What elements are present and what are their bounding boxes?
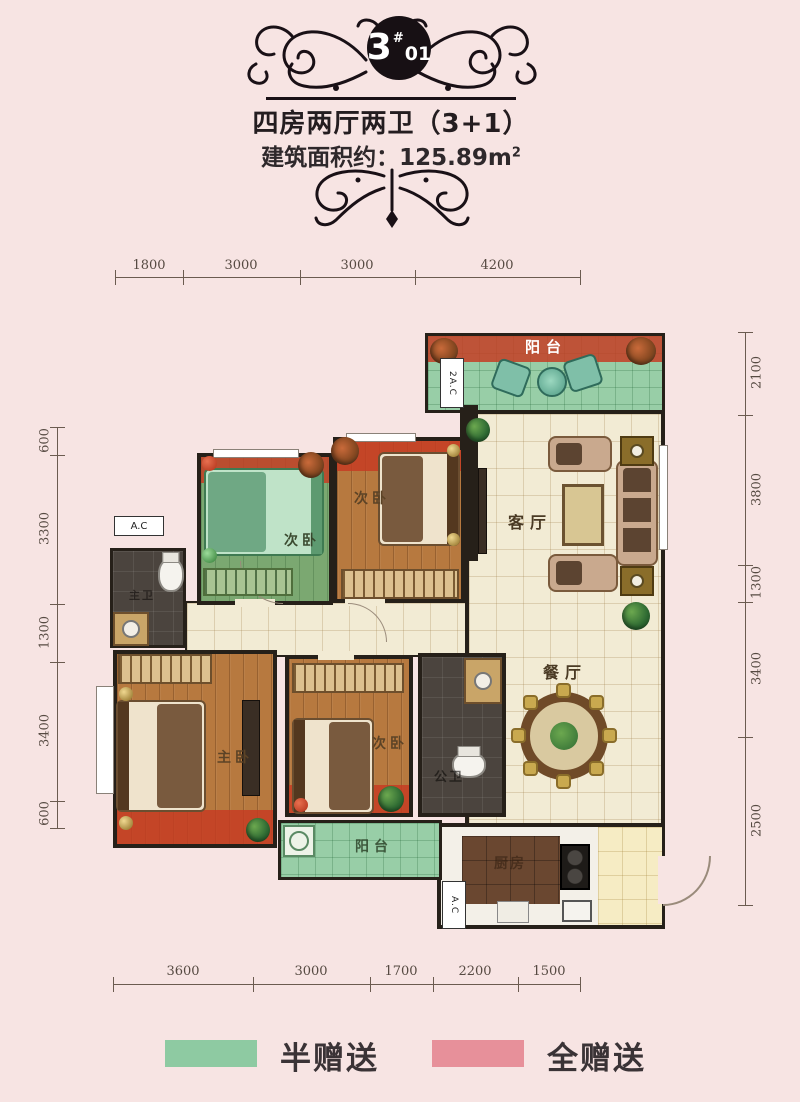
floorplan-page: { "header": { "badge_main": "3", "badge_…	[0, 0, 800, 1102]
coffee-table	[562, 484, 604, 546]
badge-hash: #	[393, 31, 404, 46]
dining-chair	[556, 774, 571, 789]
tick-mark	[415, 270, 416, 285]
tick-mark	[115, 270, 116, 285]
bed	[378, 452, 460, 546]
dining-chair	[523, 761, 538, 776]
window	[346, 433, 416, 442]
bed	[116, 700, 206, 812]
bedside-lamp	[119, 816, 133, 830]
room-label-dining: 餐厅	[543, 665, 587, 681]
dim-label: 1300	[750, 555, 765, 611]
legend-swatch-full	[432, 1040, 524, 1067]
bathroom-vanity	[113, 612, 149, 646]
tick-mark	[50, 662, 65, 663]
plant	[622, 602, 650, 630]
dim-line-right	[745, 332, 746, 905]
tick-mark	[183, 270, 184, 285]
dim-label: 1700	[373, 964, 429, 979]
side-table	[620, 436, 654, 466]
room-label-balcony-bottom: 阳台	[355, 840, 393, 854]
bedside-lamp	[447, 444, 460, 457]
legend-label-half: 半赠送	[280, 1033, 379, 1078]
window	[659, 445, 668, 550]
tick-mark	[580, 977, 581, 992]
dim-label: 2200	[447, 964, 503, 979]
dim-label: 1500	[521, 964, 577, 979]
tick-mark	[113, 977, 114, 992]
dining-set	[510, 682, 618, 790]
tick-mark	[580, 270, 581, 285]
dining-chair	[589, 695, 604, 710]
entry-door-swing	[663, 856, 711, 906]
footer-flourish	[288, 166, 496, 232]
tick-mark	[738, 737, 753, 738]
dim-label: 3400	[38, 703, 53, 759]
dim-label: 600	[38, 786, 53, 842]
tick-mark	[738, 332, 753, 333]
dim-line-top	[115, 277, 580, 278]
corridor-floor	[185, 601, 467, 657]
legend-label-full: 全赠送	[547, 1033, 646, 1078]
plant	[331, 437, 359, 465]
bathroom-vanity	[464, 658, 502, 704]
room-label-bath-public: 公卫	[434, 771, 464, 784]
dim-label: 3300	[38, 501, 53, 557]
toilet	[158, 558, 184, 592]
tick-mark	[300, 270, 301, 285]
room-label-bedroom-green: 次卧	[284, 534, 320, 548]
room-label-kitchen: 厨房	[494, 857, 526, 871]
tick-mark	[738, 415, 753, 416]
plant	[378, 786, 404, 812]
header-divider	[266, 97, 516, 100]
legend-swatch-half	[165, 1040, 257, 1067]
dim-label: 600	[38, 413, 53, 469]
plant	[466, 418, 490, 442]
dim-label: 3400	[750, 641, 765, 697]
tick-mark	[518, 977, 519, 992]
bedside-lamp	[294, 798, 308, 812]
dim-line-bottom	[113, 984, 580, 985]
badge-unit-number: 01	[405, 43, 431, 65]
ac-box-left: A.C	[114, 516, 164, 536]
area-superscript: 2	[512, 145, 521, 160]
room-label-balcony-top: 阳台	[525, 340, 567, 355]
ac-box-top: 2A.C	[440, 358, 464, 408]
room-label-living: 客厅	[508, 515, 552, 531]
tick-mark	[738, 905, 753, 906]
unit-badge: 3 # 01	[367, 16, 431, 80]
washing-machine	[283, 825, 315, 857]
balcony-table	[537, 367, 567, 397]
door-opening	[318, 651, 354, 660]
sofa	[616, 460, 658, 566]
plant	[298, 452, 324, 478]
dining-chair	[523, 695, 538, 710]
wardrobe	[203, 568, 293, 596]
ac-box-bottom: A.C	[442, 881, 466, 929]
dining-chair	[556, 683, 571, 698]
plant	[626, 337, 656, 365]
entry-floor	[598, 827, 662, 925]
tv-wall	[465, 443, 478, 561]
bedside-lamp	[202, 548, 217, 563]
wardrobe	[118, 654, 212, 684]
room-label-master: 主卧	[217, 751, 253, 765]
window	[96, 686, 114, 794]
tv-cabinet	[478, 468, 487, 554]
bedside-lamp	[447, 533, 460, 546]
armchair	[548, 436, 612, 472]
dim-label: 4200	[469, 258, 525, 273]
side-table	[620, 566, 654, 596]
dim-label: 3000	[329, 258, 385, 273]
dining-chair	[602, 728, 617, 743]
dim-label: 1300	[38, 605, 53, 661]
tick-mark	[253, 977, 254, 992]
kitchen-counter-box	[497, 901, 529, 923]
tick-mark	[370, 977, 371, 992]
dim-line-left	[57, 427, 58, 828]
dining-chair	[511, 728, 526, 743]
window	[213, 449, 299, 458]
dim-label: 1800	[121, 258, 177, 273]
dim-label: 3000	[283, 964, 339, 979]
plant	[246, 818, 270, 842]
badge-building-number: 3	[367, 30, 392, 66]
stove	[560, 844, 590, 890]
room-label-bedroom-bottom: 次卧	[372, 737, 408, 751]
room-label-bath-master: 主卫	[129, 590, 155, 601]
room-label-bedroom-top: 次卧	[354, 492, 390, 506]
tick-mark	[433, 977, 434, 992]
dim-label: 3800	[750, 462, 765, 518]
dim-label: 2500	[750, 793, 765, 849]
dresser	[242, 700, 260, 796]
bedside-lamp	[202, 456, 217, 471]
armchair	[548, 554, 618, 592]
dim-label: 3000	[213, 258, 269, 273]
wardrobe	[292, 663, 404, 693]
wardrobe	[341, 569, 459, 599]
dim-label: 2100	[750, 345, 765, 401]
dim-label: 3600	[155, 964, 211, 979]
kitchen-sink	[562, 900, 592, 922]
page-title: 四房两厅两卫（3+1）	[253, 103, 530, 140]
bedside-lamp	[119, 687, 133, 701]
dining-chair	[589, 761, 604, 776]
